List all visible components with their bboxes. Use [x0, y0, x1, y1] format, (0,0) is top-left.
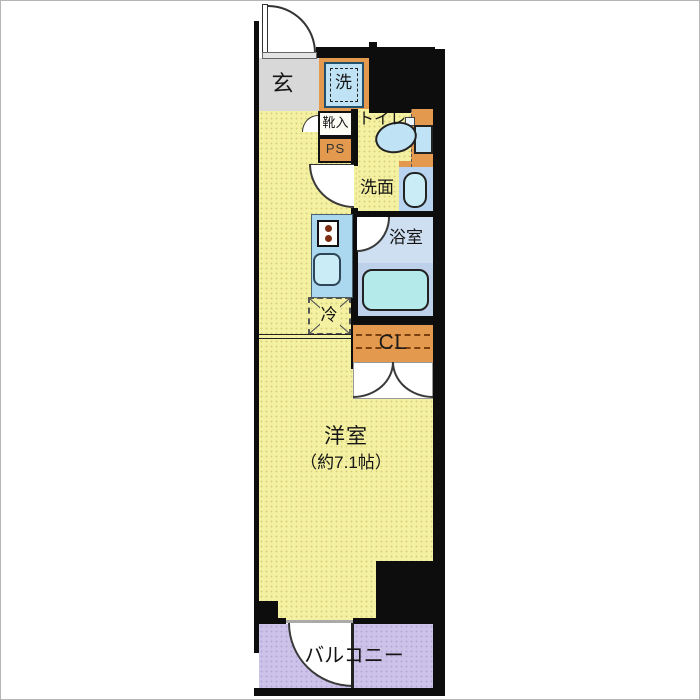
- refrigerator-label: 冷: [320, 305, 340, 325]
- wall-right: [433, 49, 445, 694]
- bathtub-icon: [362, 269, 429, 311]
- washroom-label: 洗面: [355, 178, 399, 198]
- stove-icon: [317, 220, 339, 247]
- main-room-label: 洋室: [259, 425, 433, 449]
- washer-label: 洗: [324, 73, 364, 93]
- burner-icon: [325, 235, 332, 242]
- refrigerator-space: 冷: [308, 297, 351, 335]
- pipe-space-label: PS: [318, 142, 353, 157]
- balcony-wall-notch: [254, 653, 259, 688]
- wall-top-right-block: [369, 58, 433, 113]
- kitchen-sink: [313, 253, 341, 286]
- room-boundary-line: [259, 338, 351, 339]
- balcony-label: バルコニー: [279, 645, 429, 668]
- main-room-size-label: （約7.1帖）: [259, 453, 433, 473]
- wall-balcony-right-seg: [353, 618, 445, 624]
- toilet-tank: [414, 125, 433, 154]
- washbasin-sink-icon: [403, 172, 427, 208]
- floor-plan: 冷 玄 洗 靴入 PS トイレ 洗面 浴室 CL 洋室 （約7.1帖） バルコニ…: [0, 0, 700, 700]
- wall-bottom-left-step: [254, 601, 278, 623]
- genkan-label: 玄: [263, 71, 303, 96]
- wall-bottom: [254, 688, 445, 696]
- shoe-storage-label: 靴入: [318, 116, 353, 131]
- wall-top: [316, 47, 435, 58]
- toilet-label: トイレ: [353, 111, 411, 129]
- entrance-door-swing-arc: [268, 5, 316, 53]
- wall-left: [254, 21, 259, 694]
- bathroom-label: 浴室: [379, 228, 433, 248]
- burner-icon: [325, 225, 332, 232]
- closet-label: CL: [353, 331, 433, 355]
- wall-bath-closet: [351, 316, 433, 323]
- room-boundary-line: [259, 334, 351, 335]
- wall-top-nub: [369, 42, 377, 48]
- closet-door-center-tick: [392, 362, 394, 369]
- entrance-threshold: [262, 52, 317, 59]
- wall-bottom-right-block: [376, 561, 433, 618]
